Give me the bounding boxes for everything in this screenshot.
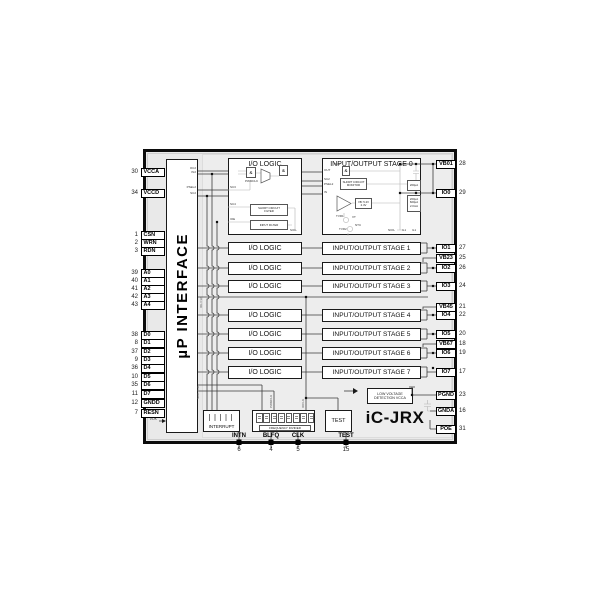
divider-cell <box>286 413 293 423</box>
pin-label: VB67 <box>436 340 456 349</box>
pin-vb67: VB6718 <box>436 340 482 349</box>
signal-in: IN <box>324 191 327 194</box>
pin-io4: IO422 <box>436 311 482 320</box>
low-voltage-detection-block: LOW VOLTAGE DETECTION VCCA <box>367 388 413 404</box>
test-label: TEST <box>331 418 345 424</box>
signal-sc2: SC2 <box>184 192 196 195</box>
io-logic-label: I/O LOGIC <box>248 283 281 290</box>
pin-number: 8 <box>118 339 138 348</box>
io-logic-block-5: I/O LOGIC <box>228 328 302 341</box>
io-logic-block-3: I/O LOGIC <box>228 280 302 293</box>
pin-test-number: 15 <box>336 447 356 453</box>
pin-number: 19 <box>459 349 475 358</box>
short-circuit-monitor-box: SHORT CIRCUIT MONITOR <box>340 178 367 190</box>
io-stage-label: INPUT/OUTPUT STAGE 3 <box>333 283 411 290</box>
pin-label: IO2 <box>436 264 456 273</box>
io-logic-label: I/O LOGIC <box>248 265 281 272</box>
pin-d4: 36D4 <box>118 364 165 373</box>
input-filter-box: INPUT FILTER <box>250 220 288 230</box>
label-vt: VT <box>352 216 356 219</box>
io-stage-label: INPUT/OUTPUT STAGE 5 <box>333 331 411 338</box>
io-logic-label: I/O LOGIC <box>248 369 281 376</box>
pin-io3: IO324 <box>436 282 482 291</box>
signal-ioe: IOE <box>230 218 235 221</box>
signal-psel2: PSEL2 <box>324 183 333 186</box>
filter-line2: FILTER <box>251 210 287 213</box>
input-filter-label: INPUT FILTER <box>251 224 287 227</box>
up-interface-block: µP INTERFACE <box>166 159 198 433</box>
pin-number: 35 <box>118 381 138 390</box>
pin-vb01: VB0128 <box>436 160 482 169</box>
current-value: 2.0mA <box>408 205 420 208</box>
frequency-divider-label: FREQUENCY DIVIDER <box>259 425 311 431</box>
io-stage-label: INPUT/OUTPUT STAGE 2 <box>333 265 411 272</box>
pin-number: 26 <box>459 264 475 273</box>
pin-label: IO4 <box>436 311 456 320</box>
io-stage-6-block: INPUT/OUTPUT STAGE 6 <box>322 347 421 360</box>
pin-label: GNDA <box>436 407 456 416</box>
pin-number: 20 <box>459 330 475 339</box>
vb-line2: 2.4V <box>356 204 371 207</box>
divider-cell <box>293 413 300 423</box>
io-logic-label: I/O LOGIC <box>248 312 281 319</box>
divider-cell <box>308 413 315 423</box>
pin-a4: 43A4 <box>118 301 165 310</box>
divider-cell <box>278 413 285 423</box>
pin-label: VCCD <box>141 189 165 198</box>
pin-vcca: 30VCCA <box>118 168 165 177</box>
io-logic-title: I/O LOGIC <box>229 161 301 168</box>
pin-number: 24 <box>459 282 475 291</box>
pin-label: IO6 <box>436 349 456 358</box>
signal-bus-vertical: NOK T1R <box>196 386 200 399</box>
short-circuit-filter-box: SHORT CIRCUIT FILTER <box>250 204 288 216</box>
pin-number: 18 <box>459 340 475 349</box>
pin-label: D4 <box>141 364 165 373</box>
signal-sc3: SC3 <box>230 186 236 189</box>
pin-number: 27 <box>459 244 475 253</box>
current-value: 200µA <box>408 184 420 187</box>
pin-clk: CLK <box>281 433 315 439</box>
signal-siol: SIOL <box>290 229 297 232</box>
pin-vb23: VB2325 <box>436 254 482 263</box>
pin-io0: IO029 <box>436 189 482 198</box>
pin-label: VB23 <box>436 254 456 263</box>
pin-number: 29 <box>459 189 475 198</box>
pin-number: 11 <box>118 390 138 399</box>
and-gate: & <box>342 166 350 176</box>
monitor-line2: MONITOR <box>341 184 366 187</box>
io-stage-label: INPUT/OUTPUT STAGE 7 <box>333 369 411 376</box>
pin-rdn: 3RDN <box>118 247 165 256</box>
signal-il1: IL1 <box>412 229 416 232</box>
pin-label: D6 <box>141 381 165 390</box>
pin-label: D7 <box>141 390 165 399</box>
signal-il1: IL1 <box>402 229 406 232</box>
pin-d1: 8D1 <box>118 339 165 348</box>
io-stage-7-block: INPUT/OUTPUT STAGE 7 <box>322 366 421 379</box>
io-logic-label: I/O LOGIC <box>248 350 281 357</box>
pin-d7: 11D7 <box>118 390 165 399</box>
io-logic-label: I/O LOGIC <box>248 331 281 338</box>
pin-label: IO1 <box>436 244 456 253</box>
pin-label: IO7 <box>436 368 456 377</box>
io-stage-2-block: INPUT/OUTPUT STAGE 2 <box>322 262 421 275</box>
pin-poe: POE31 <box>436 425 482 434</box>
pin-label: VB01 <box>436 160 456 169</box>
pin-label: PGND <box>436 391 456 400</box>
pin-label: D1 <box>141 339 165 348</box>
signal-sc4: SC4 <box>230 203 236 206</box>
pin-number: 17 <box>459 368 475 377</box>
pin-number: 25 <box>459 254 475 263</box>
vb-threshold-box: VB: 5.2V 2.4V <box>355 198 372 209</box>
io-stage-label: INPUT/OUTPUT STAGE 1 <box>333 245 411 252</box>
pin-number: 31 <box>459 425 475 434</box>
frequency-divider-block: FREQUENCY DIVIDER <box>252 410 315 432</box>
pin-number: 34 <box>118 189 138 198</box>
signal-niol: NIOL <box>388 229 395 232</box>
chip-name: iC-JRX <box>360 408 430 428</box>
diagram-page: { "labels": { "chip_name": "iC-JRX", "in… <box>0 0 600 600</box>
io-logic-block-6: I/O LOGIC <box>228 347 302 360</box>
pin-number: 12 <box>118 399 138 408</box>
pin-number: 16 <box>459 407 475 416</box>
pin-io2: IO226 <box>436 264 482 273</box>
pin-blfq-number: 4 <box>261 447 281 453</box>
signal-in2: IN2 <box>184 171 196 174</box>
label-tvr2: TVR2 <box>339 228 347 231</box>
interrupt-block: INTERRUPT <box>203 410 240 432</box>
pin-d6: 35D6 <box>118 381 165 390</box>
io-stage-label: INPUT/OUTPUT STAGE 6 <box>333 350 411 357</box>
signal-bus-vertical: IOL CLK <box>199 297 203 308</box>
label-tvr1: TVR1 <box>336 215 344 218</box>
pin-number: 30 <box>118 168 138 177</box>
pin-number: 22 <box>459 311 475 320</box>
pin-clk-number: 5 <box>288 447 308 453</box>
and-gate: & <box>246 167 256 178</box>
current-source-box-1: 200µA <box>407 180 421 191</box>
pin-resn: 7RESN <box>118 409 165 418</box>
io-logic-block-2: I/O LOGIC <box>228 262 302 275</box>
io-logic-label: I/O LOGIC <box>248 245 281 252</box>
signal-pwmclk-vertical: PWMCLK <box>269 395 273 408</box>
signal-out: OUT <box>324 169 330 172</box>
signal-vok: VOK <box>144 418 157 421</box>
pin-io7: IO717 <box>436 368 482 377</box>
pin-label: IO5 <box>436 330 456 339</box>
low-voltage-line2: DETECTION VCCA <box>368 396 412 400</box>
pin-gnda: GNDA16 <box>436 407 482 416</box>
pin-io6: IO619 <box>436 349 482 358</box>
pin-vccd: 34VCCD <box>118 189 165 198</box>
pin-io5: IO520 <box>436 330 482 339</box>
up-interface-label: µP INTERFACE <box>174 233 191 359</box>
pin-pgnd: PGND23 <box>436 391 482 400</box>
divider-cell <box>263 413 270 423</box>
divider-cell <box>271 413 278 423</box>
signal-pwmclk: PWMCLK <box>245 180 258 183</box>
pin-gndd: 12GNDD <box>118 399 165 408</box>
io-stage-5-block: INPUT/OUTPUT STAGE 5 <box>322 328 421 341</box>
io-stage-1-block: INPUT/OUTPUT STAGE 1 <box>322 242 421 255</box>
pin-label: IO3 <box>436 282 456 291</box>
label-ntc: NTC <box>355 224 361 227</box>
io-logic-block-7: I/O LOGIC <box>228 366 302 379</box>
pin-number: 23 <box>459 391 475 400</box>
and-gate: & <box>279 165 288 176</box>
interrupt-label: INTERRUPT <box>204 424 239 429</box>
pin-label: A4 <box>141 301 165 310</box>
pin-label: VCCA <box>141 168 165 177</box>
pin-label: RDN <box>141 247 165 256</box>
pin-number: 7 <box>118 409 138 418</box>
signal-pck: PCK <box>334 163 340 166</box>
pin-test: TEST <box>329 433 363 439</box>
io-logic-block-4: I/O LOGIC <box>228 309 302 322</box>
divider-cell <box>300 413 307 423</box>
divider-cell <box>256 413 263 423</box>
pin-intn-number: 6 <box>229 447 249 453</box>
current-source-box-2: 200µA 600µA 2.0mA <box>407 195 421 212</box>
pin-number: 28 <box>459 160 475 169</box>
pin-number: 36 <box>118 364 138 373</box>
pin-label: GNDD <box>141 399 165 408</box>
io-stage-label: INPUT/OUTPUT STAGE 4 <box>333 312 411 319</box>
io-stage-4-block: INPUT/OUTPUT STAGE 4 <box>322 309 421 322</box>
io-logic-block-1: I/O LOGIC <box>228 242 302 255</box>
signal-sc2: SC2 <box>324 178 330 181</box>
test-block: TEST <box>325 410 352 432</box>
pin-intn: INTN <box>222 433 256 439</box>
signal-psel2: PSEL2 <box>180 186 196 189</box>
pin-label: IO0 <box>436 189 456 198</box>
pin-number: 43 <box>118 301 138 310</box>
pin-label: RESN <box>141 409 165 418</box>
signal-ioclk-vertical: IOCLK <box>301 399 305 408</box>
io-stage-3-block: INPUT/OUTPUT STAGE 3 <box>322 280 421 293</box>
interrupt-input-marks <box>209 414 236 421</box>
pin-io1: IO127 <box>436 244 482 253</box>
pin-number: 3 <box>118 247 138 256</box>
pin-label: POE <box>436 425 456 434</box>
